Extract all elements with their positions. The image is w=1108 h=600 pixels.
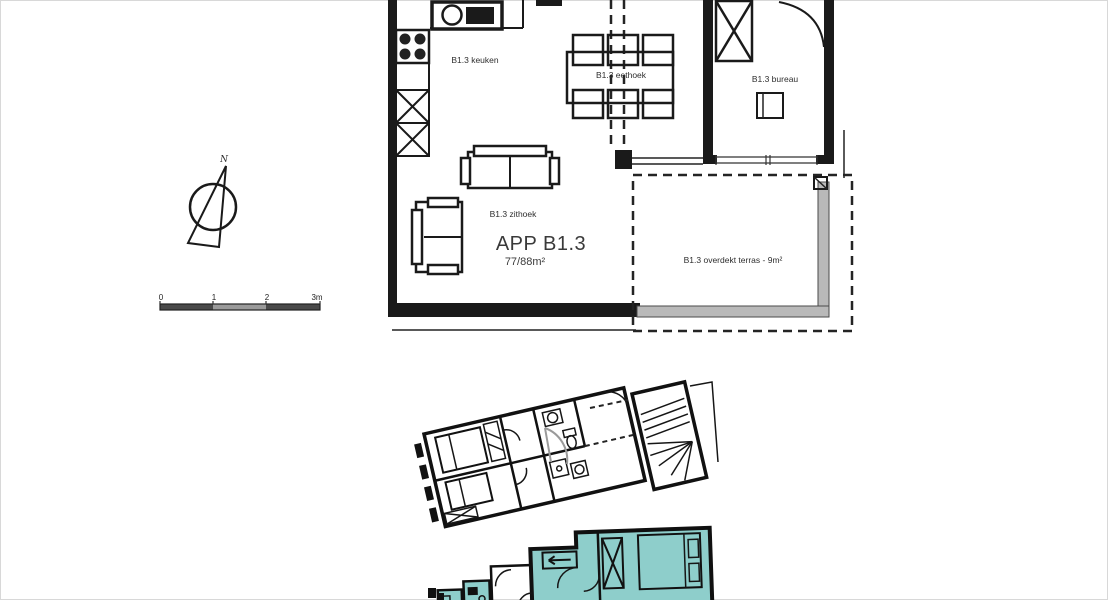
terrace-railing-right [818,182,829,306]
scale-bar: 0 1 2 3m [159,293,323,310]
walls [388,0,844,330]
scale-tick-3: 3m [311,293,322,302]
floorplan-canvas: N 0 1 2 3m [0,0,1108,600]
north-arrow: N [188,155,236,247]
site-connector-dash [590,400,628,408]
kitchen-area: B1.3 keuken [396,0,523,156]
terrace-railing-bottom [637,306,829,317]
site-wing [412,388,645,529]
site-bed-2 [445,473,492,510]
sink [432,2,502,29]
terrace-area: B1.3 overdekt terras - 9m² [633,175,852,331]
office-closet [716,1,752,61]
sitting-label: B1.3 zithoek [490,209,538,219]
apartment-area: 77/88m² [505,256,546,268]
office-door-arc [779,2,824,47]
kitchen-label: B1.3 keuken [451,55,499,65]
sofa-small [412,198,462,274]
scale-tick-1: 1 [212,293,217,302]
dining-area: B1.3 eethoek [567,35,673,118]
kitchen-cabinets [396,63,429,156]
scale-tick-2: 2 [265,293,270,302]
dining-label: B1.3 eethoek [596,70,647,80]
sofa-large [461,146,559,188]
north-label: N [219,155,229,165]
office-label: B1.3 bureau [752,74,799,84]
office-area: B1.3 bureau [716,1,824,118]
office-windows [716,155,817,165]
sitting-area: B1.3 zithoek APP B1.3 77/88m² [412,146,586,274]
main-floor-plan: B1.3 keuken B1.3 eethoek [388,0,852,331]
highlight-unit-hall [491,565,533,600]
cooktop [396,30,429,63]
terrace-label: B1.3 overdekt terras - 9m² [684,255,783,265]
scale-tick-0: 0 [159,293,164,302]
terrace-sliding-door [632,158,703,164]
site-bed-1 [435,427,488,472]
office-desk [757,93,783,118]
apartment-title: APP B1.3 [496,233,586,255]
site-plan [412,382,718,600]
site-plan-highlight [436,528,713,600]
